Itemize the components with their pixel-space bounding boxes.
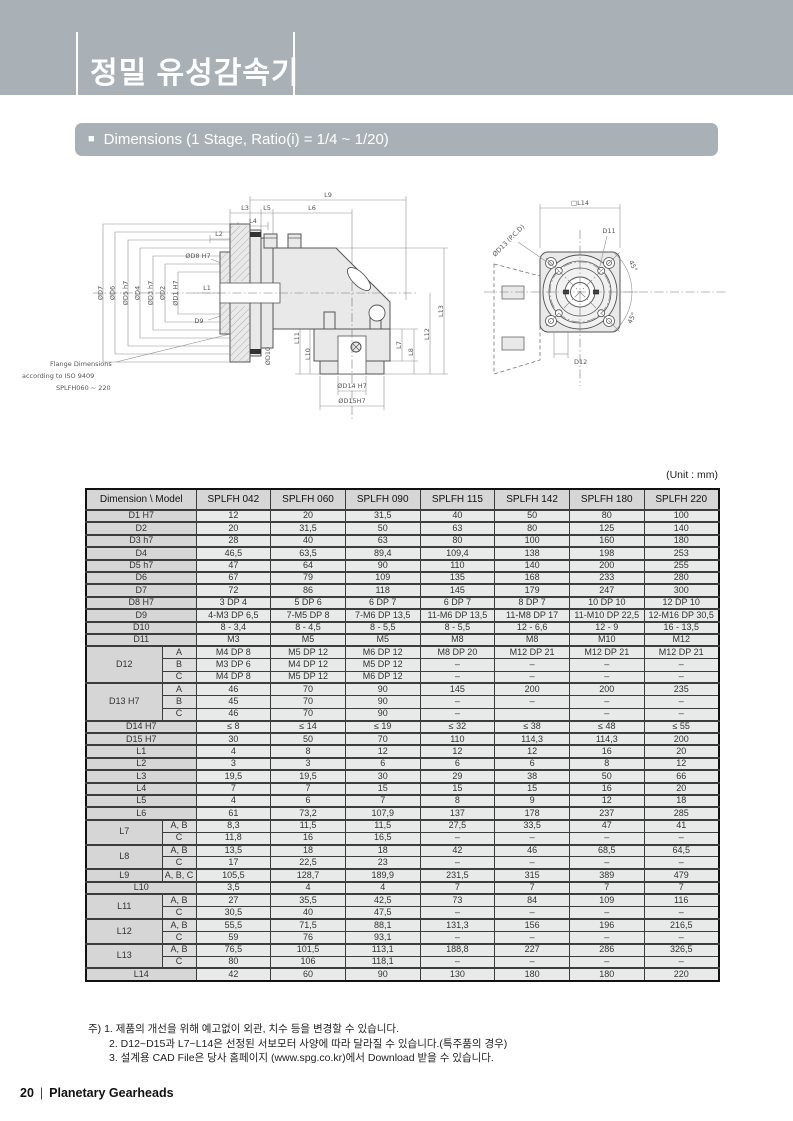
dimension-value: –	[495, 659, 570, 671]
table-row: D15 H7305070110114,3114,3200	[86, 733, 719, 745]
dimension-value: 80	[420, 535, 495, 547]
dimension-value: 84	[495, 894, 570, 906]
variant-label: C	[162, 956, 196, 968]
dimension-value: 70	[271, 708, 346, 720]
dimension-value: 113,1	[345, 944, 420, 956]
dimension-label: D14 H7	[86, 721, 196, 733]
dimension-value: 101,5	[271, 944, 346, 956]
table-row: D3 h728406380100160180	[86, 535, 719, 547]
dimension-label: D10	[86, 622, 196, 634]
header-divider-left	[76, 32, 78, 95]
dimension-value: 66	[644, 770, 719, 782]
dimension-value: 12	[196, 510, 271, 522]
dimension-value: 200	[569, 683, 644, 695]
dimension-value: 30	[196, 733, 271, 745]
dimension-value: 18	[345, 845, 420, 857]
dimension-value: –	[569, 671, 644, 683]
dimension-value: M6 DP 12	[345, 671, 420, 683]
dimension-value: –	[569, 659, 644, 671]
dimension-label: D7	[86, 584, 196, 596]
dimension-value: M3 DP 6	[196, 659, 271, 671]
dimension-value: 4-M3 DP 6,5	[196, 609, 271, 621]
flange-note-line1: Flange Dimensions	[50, 360, 112, 368]
dimension-label: L12	[86, 919, 162, 944]
header-divider-right	[293, 32, 295, 95]
dimension-value: 6	[345, 758, 420, 770]
dimension-value: 178	[495, 807, 570, 819]
dimension-value: 16	[569, 745, 644, 757]
table-row: D108 - 3,48 - 4,58 - 5,58 - 5,512 - 6,61…	[86, 622, 719, 634]
dimension-value: 42	[196, 968, 271, 980]
dimension-value: 3	[271, 758, 346, 770]
dimension-label: L9	[86, 869, 162, 881]
dimension-value: M12 DP 21	[644, 646, 719, 658]
dimension-value: 255	[644, 560, 719, 572]
dimension-value: 198	[569, 547, 644, 559]
dimension-value: –	[420, 857, 495, 869]
body-silhouette	[494, 264, 540, 374]
dimension-value: 160	[569, 535, 644, 547]
table-row: L9A, B, C105,5128,7189,9231,5315389479	[86, 869, 719, 881]
dimension-value: –	[644, 956, 719, 968]
dimension-value: 12 - 6,6	[495, 622, 570, 634]
dimension-value: 7-M5 DP 8	[271, 609, 346, 621]
dimension-value: 35,5	[271, 894, 346, 906]
dimension-value: 59	[196, 931, 271, 943]
footnote-line: 주) 1. 제품의 개선을 위해 예고없이 외관, 치수 등을 변경할 수 있습…	[88, 1022, 507, 1037]
dimension-value: 11,5	[345, 820, 420, 832]
dimension-value: 300	[644, 584, 719, 596]
dimension-label: D2	[86, 522, 196, 534]
dimension-value: 29	[420, 770, 495, 782]
dim-label-l4: L4	[249, 217, 257, 225]
dimension-value: 7	[644, 882, 719, 894]
dimension-value: 17	[196, 857, 271, 869]
table-row: L4771515151620	[86, 783, 719, 795]
dimension-value: –	[420, 907, 495, 919]
dimension-value: –	[420, 659, 495, 671]
table-row: D94-M3 DP 6,57-M5 DP 87-M6 DP 13,511-M6 …	[86, 609, 719, 621]
dimension-value: 6 DP 7	[420, 597, 495, 609]
model-column-header: SPLFH 060	[271, 489, 346, 510]
dimension-value: 50	[345, 522, 420, 534]
dimension-label: L5	[86, 795, 196, 807]
dimension-value: 8 - 3,4	[196, 622, 271, 634]
dim-label-l9: L9	[324, 191, 332, 199]
variant-label: A	[162, 683, 196, 695]
dimension-value: 18	[271, 845, 346, 857]
dimension-value: 70	[271, 683, 346, 695]
dimension-value: –	[569, 907, 644, 919]
dimension-value: M8 DP 20	[420, 646, 495, 658]
dimension-value: –	[495, 832, 570, 844]
dimension-label: L6	[86, 807, 196, 819]
dimension-value: 47,5	[345, 907, 420, 919]
dim-label-l3: L3	[241, 204, 249, 212]
dimension-value: 11-M10 DP 22,5	[569, 609, 644, 621]
dimension-value: M8	[495, 634, 570, 646]
dimension-label: D13 H7	[86, 683, 162, 720]
side-view-drawing: L9 L3 L5 L6 L4 L2 ØD7 ØD6 ØD5 h7 ØD4 ØD3…	[18, 186, 458, 431]
dimension-value: 326,5	[644, 944, 719, 956]
dimension-value: 46	[495, 845, 570, 857]
dimension-value: –	[420, 708, 495, 720]
dimension-value: 156	[495, 919, 570, 931]
angle-label-top: 45°	[627, 259, 639, 273]
dimension-value: 38	[495, 770, 570, 782]
dimension-value: 72	[196, 584, 271, 596]
dimension-value: –	[420, 832, 495, 844]
dimension-value: 42,5	[345, 894, 420, 906]
dimension-value: 315	[495, 869, 570, 881]
variant-label: C	[162, 907, 196, 919]
dimension-value: 227	[495, 944, 570, 956]
table-row: L14426090130180180220	[86, 968, 719, 980]
dimension-value: 11,8	[196, 832, 271, 844]
dimension-value: –	[644, 696, 719, 708]
dimension-value: –	[644, 907, 719, 919]
dimension-value: –	[569, 956, 644, 968]
footnote-line: 2. D12~D15과 L7~L14은 선정된 서보모터 사양에 따라 달라질 …	[88, 1037, 507, 1052]
dimension-value: 89,4	[345, 547, 420, 559]
dimension-value: –	[644, 832, 719, 844]
dimension-value: 12 - 9	[569, 622, 644, 634]
callout-d10: ØD10	[264, 347, 272, 365]
dimension-value: 6	[495, 758, 570, 770]
dimension-value: 4	[345, 882, 420, 894]
dimension-value: 220	[644, 968, 719, 980]
dimension-value: 30,5	[196, 907, 271, 919]
table-row: B457090––––	[86, 696, 719, 708]
dimension-value: 200	[569, 560, 644, 572]
dimension-value: ≤ 38	[495, 721, 570, 733]
table-row: L233666812	[86, 758, 719, 770]
dimension-value: 88,1	[345, 919, 420, 931]
dimension-value: 11-M6 DP 13,5	[420, 609, 495, 621]
dimension-value: 8	[420, 795, 495, 807]
dim-label-l14: □L14	[571, 199, 589, 207]
dim-label-d6: ØD6	[109, 286, 117, 300]
dimension-label: L7	[86, 820, 162, 845]
page-number: 20	[20, 1086, 34, 1100]
dimension-value: 33,5	[495, 820, 570, 832]
dim-label-l13: L13	[437, 305, 445, 317]
flange-note-line3: SPLFH060 ~ 220	[56, 384, 111, 392]
dimension-value: 12	[569, 795, 644, 807]
model-column-header: SPLFH 042	[196, 489, 271, 510]
dim-label-l7: L7	[395, 341, 403, 349]
dimension-value: 93,1	[345, 931, 420, 943]
variant-label: A, B	[162, 919, 196, 931]
dimension-label: D15 H7	[86, 733, 196, 745]
dimension-value: M6 DP 12	[345, 646, 420, 658]
dimension-value: 16	[569, 783, 644, 795]
dimension-value: 180	[569, 968, 644, 980]
dimension-value: 16,5	[345, 832, 420, 844]
callout-d8: ØD8 H7	[185, 252, 210, 260]
dimension-value: 7-M6 DP 13,5	[345, 609, 420, 621]
dimension-value: 41	[644, 820, 719, 832]
dimension-value: 7	[420, 882, 495, 894]
dimension-value: 196	[569, 919, 644, 931]
dimension-value: M4 DP 8	[196, 671, 271, 683]
dimension-value: 12 DP 10	[644, 597, 719, 609]
footer-separator: |	[40, 1086, 43, 1100]
footer-label: Planetary Gearheads	[49, 1086, 173, 1100]
dim-label-d7: ØD7	[97, 286, 105, 300]
dimension-value: 18	[644, 795, 719, 807]
variant-label: C	[162, 857, 196, 869]
dimension-value	[495, 708, 570, 720]
dimension-value: 7	[495, 882, 570, 894]
dimension-value: –	[420, 956, 495, 968]
dimension-value: 180	[644, 535, 719, 547]
dimension-value: 80	[196, 956, 271, 968]
dimension-value: 40	[271, 535, 346, 547]
dimension-value: 114,3	[495, 733, 570, 745]
dimension-value: ≤ 8	[196, 721, 271, 733]
dimension-value: M4 DP 8	[196, 646, 271, 658]
dimension-value: 50	[569, 770, 644, 782]
dimension-value: ≤ 19	[345, 721, 420, 733]
table-row: D446,563,589,4109,4138198253	[86, 547, 719, 559]
dim-label-l5: L5	[263, 204, 271, 212]
dimension-value: 55,5	[196, 919, 271, 931]
dimension-value: 7	[271, 783, 346, 795]
dimension-value: 31,5	[345, 510, 420, 522]
dimension-value: 7	[569, 882, 644, 894]
dimension-value: 237	[569, 807, 644, 819]
dim-label-d2: ØD2	[159, 286, 167, 300]
dim-label-l10: L10	[304, 348, 312, 360]
dimension-value: M5 DP 12	[271, 646, 346, 658]
dimension-value: 23	[345, 857, 420, 869]
dimension-value: 4	[271, 882, 346, 894]
dimension-value: 125	[569, 522, 644, 534]
dimension-value: 28	[196, 535, 271, 547]
dimension-value: 46	[196, 708, 271, 720]
model-column-header: SPLFH 220	[644, 489, 719, 510]
section-title: Dimensions (1 Stage, Ratio(i) = 1/4 ~ 1/…	[104, 131, 389, 148]
dimension-value: 90	[345, 968, 420, 980]
dimension-value: 118	[345, 584, 420, 596]
table-row: C30,54047,5––––	[86, 907, 719, 919]
dimension-value: M12	[644, 634, 719, 646]
dim-label-d12: D12	[574, 358, 587, 366]
dimension-value: ≤ 48	[569, 721, 644, 733]
dimension-value: 64,5	[644, 845, 719, 857]
dimension-value: –	[495, 931, 570, 943]
dimension-value: 3 DP 4	[196, 597, 271, 609]
dimension-value: 63,5	[271, 547, 346, 559]
dimension-label: D3 h7	[86, 535, 196, 547]
table-row: D8 H73 DP 45 DP 66 DP 76 DP 78 DP 710 DP…	[86, 597, 719, 609]
dimension-value: 80	[495, 522, 570, 534]
dimension-value: 6	[271, 795, 346, 807]
variant-label: A, B	[162, 845, 196, 857]
dim-label-l11: L11	[293, 332, 301, 344]
dimension-value: 106	[271, 956, 346, 968]
variant-label: A, B	[162, 894, 196, 906]
dimension-value: –	[569, 832, 644, 844]
dimension-value: M10	[569, 634, 644, 646]
variant-label: B	[162, 696, 196, 708]
dimension-value: 130	[420, 968, 495, 980]
dimension-value: 30	[345, 770, 420, 782]
dimension-value: 76	[271, 931, 346, 943]
dimensions-table: Dimension \ Model SPLFH 042 SPLFH 060 SP…	[85, 488, 720, 982]
dimension-model-header: Dimension \ Model	[86, 489, 196, 510]
dimension-value: 135	[420, 572, 495, 584]
variant-label: A, B	[162, 820, 196, 832]
dimension-value: 100	[644, 510, 719, 522]
dimension-value: 70	[345, 733, 420, 745]
dim-label-d11: D11	[602, 227, 615, 235]
table-row: D77286118145179247300	[86, 584, 719, 596]
dimension-value: 179	[495, 584, 570, 596]
dimension-value: 6	[420, 758, 495, 770]
dim-label-d4: ØD4	[134, 286, 142, 300]
dimension-value: 8,3	[196, 820, 271, 832]
dim-label-l6: L6	[308, 204, 316, 212]
dimension-value: 11,5	[271, 820, 346, 832]
dimension-value: 46	[196, 683, 271, 695]
dimension-value: 13,5	[196, 845, 271, 857]
dimension-value: 42	[420, 845, 495, 857]
dimension-value: 235	[644, 683, 719, 695]
dimension-value: 63	[420, 522, 495, 534]
dimension-value: 200	[495, 683, 570, 695]
dimension-value: –	[644, 659, 719, 671]
dimension-label: L14	[86, 968, 196, 980]
dimension-value: 231,5	[420, 869, 495, 881]
dimension-value: 3,5	[196, 882, 271, 894]
dimension-value: 10 DP 10	[569, 597, 644, 609]
model-column-header: SPLFH 180	[569, 489, 644, 510]
footnotes: 주) 1. 제품의 개선을 위해 예고없이 외관, 치수 등을 변경할 수 있습…	[88, 1022, 507, 1066]
dimension-value: 70	[271, 696, 346, 708]
dimension-value: –	[644, 671, 719, 683]
dimension-value: –	[644, 857, 719, 869]
dimension-label: L13	[86, 944, 162, 969]
dim-label-d13-pcd: ØD13 (P.C.D)	[491, 223, 526, 258]
dimension-value: 137	[420, 807, 495, 819]
table-row: C467090–––	[86, 708, 719, 720]
dimension-value: 109	[345, 572, 420, 584]
table-row: L1481212121620	[86, 745, 719, 757]
catalog-page: 정밀 유성감속기 ■ Dimensions (1 Stage, Ratio(i)…	[0, 0, 793, 1121]
callout-d9: D9	[194, 317, 203, 325]
dimension-value: 7	[345, 795, 420, 807]
dimension-value: –	[569, 931, 644, 943]
table-row: D11M3M5M5M8M8M10M12	[86, 634, 719, 646]
dimension-value: 216,5	[644, 919, 719, 931]
dimension-value: 15	[345, 783, 420, 795]
dimension-value: 4	[196, 795, 271, 807]
dimension-value: –	[644, 708, 719, 720]
dimension-value: –	[495, 857, 570, 869]
dimension-value: 8 - 5,5	[420, 622, 495, 634]
table-row: D14 H7≤ 8≤ 14≤ 19≤ 32≤ 38≤ 48≤ 55	[86, 721, 719, 733]
dimension-value: 71,5	[271, 919, 346, 931]
variant-label: A, B, C	[162, 869, 196, 881]
dimension-value: 7	[196, 783, 271, 795]
dimension-value: 15	[420, 783, 495, 795]
model-column-header: SPLFH 090	[345, 489, 420, 510]
dimension-value: 50	[271, 733, 346, 745]
table-row: D5 h7476490110140200255	[86, 560, 719, 572]
dimension-value: 5 DP 6	[271, 597, 346, 609]
dimension-value: 128,7	[271, 869, 346, 881]
dimension-value: –	[495, 956, 570, 968]
dimension-value: 180	[495, 968, 570, 980]
dimension-value: 22,5	[271, 857, 346, 869]
dimension-value: M5	[271, 634, 346, 646]
dimension-value: 60	[271, 968, 346, 980]
dimension-value: –	[569, 857, 644, 869]
table-row: L13A, B76,5101,5113,1188,8227286326,5	[86, 944, 719, 956]
dimension-value: 285	[644, 807, 719, 819]
variant-label: C	[162, 708, 196, 720]
table-row: D12AM4 DP 8M5 DP 12M6 DP 12M8 DP 20M12 D…	[86, 646, 719, 658]
dim-label-d3: ØD3 h7	[147, 281, 155, 306]
dimension-value: 253	[644, 547, 719, 559]
dimension-value: M3	[196, 634, 271, 646]
variant-label: C	[162, 671, 196, 683]
dimension-value: 27	[196, 894, 271, 906]
dimension-value: –	[569, 708, 644, 720]
table-row: L319,519,53029385066	[86, 770, 719, 782]
table-row: C597693,1––––	[86, 931, 719, 943]
dimension-value: 46,5	[196, 547, 271, 559]
unit-note: (Unit : mm)	[85, 469, 718, 481]
model-column-header: SPLFH 142	[495, 489, 570, 510]
dim-label-l8: L8	[407, 348, 415, 356]
dimension-value: 12	[495, 745, 570, 757]
dimension-label: D6	[86, 572, 196, 584]
dimension-value: ≤ 14	[271, 721, 346, 733]
dimension-label: L1	[86, 745, 196, 757]
dimension-value: 116	[644, 894, 719, 906]
dimension-label: L11	[86, 894, 162, 919]
dimension-value: 110	[420, 733, 495, 745]
variant-label: C	[162, 832, 196, 844]
dimension-value: 19,5	[196, 770, 271, 782]
dimension-value: 76,5	[196, 944, 271, 956]
dimension-value: 12-M16 DP 30,5	[644, 609, 719, 621]
dim-label-l12: L12	[423, 328, 431, 340]
dimension-value: 8	[569, 758, 644, 770]
dimension-value: ≤ 32	[420, 721, 495, 733]
table-row: L7A, B8,311,511,527,533,54741	[86, 820, 719, 832]
dimension-value: 145	[420, 584, 495, 596]
table-body: D1 H7122031,5405080100D22031,55063801251…	[86, 510, 719, 981]
dimension-value: 3	[196, 758, 271, 770]
dimension-value: 79	[271, 572, 346, 584]
dimension-value: 20	[271, 510, 346, 522]
dimension-label: D5 h7	[86, 560, 196, 572]
dimension-value: 479	[644, 869, 719, 881]
variant-label: A	[162, 646, 196, 658]
section-bullet-icon: ■	[88, 134, 95, 145]
dim-label-l2: L2	[215, 230, 223, 238]
table-row: L103,5447777	[86, 882, 719, 894]
dimension-value: 90	[345, 683, 420, 695]
dimension-value: 131,3	[420, 919, 495, 931]
dimension-value: 107,9	[345, 807, 420, 819]
dimension-value: 389	[569, 869, 644, 881]
variant-label: C	[162, 931, 196, 943]
